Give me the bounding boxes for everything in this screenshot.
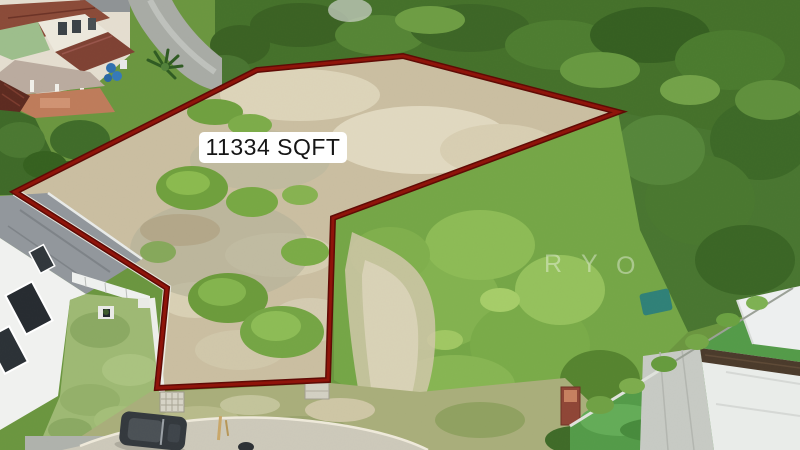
area-label: 11334 SQFT: [199, 132, 347, 163]
aerial-photo: R Y O: [0, 0, 800, 450]
photo-grain: [0, 0, 800, 450]
